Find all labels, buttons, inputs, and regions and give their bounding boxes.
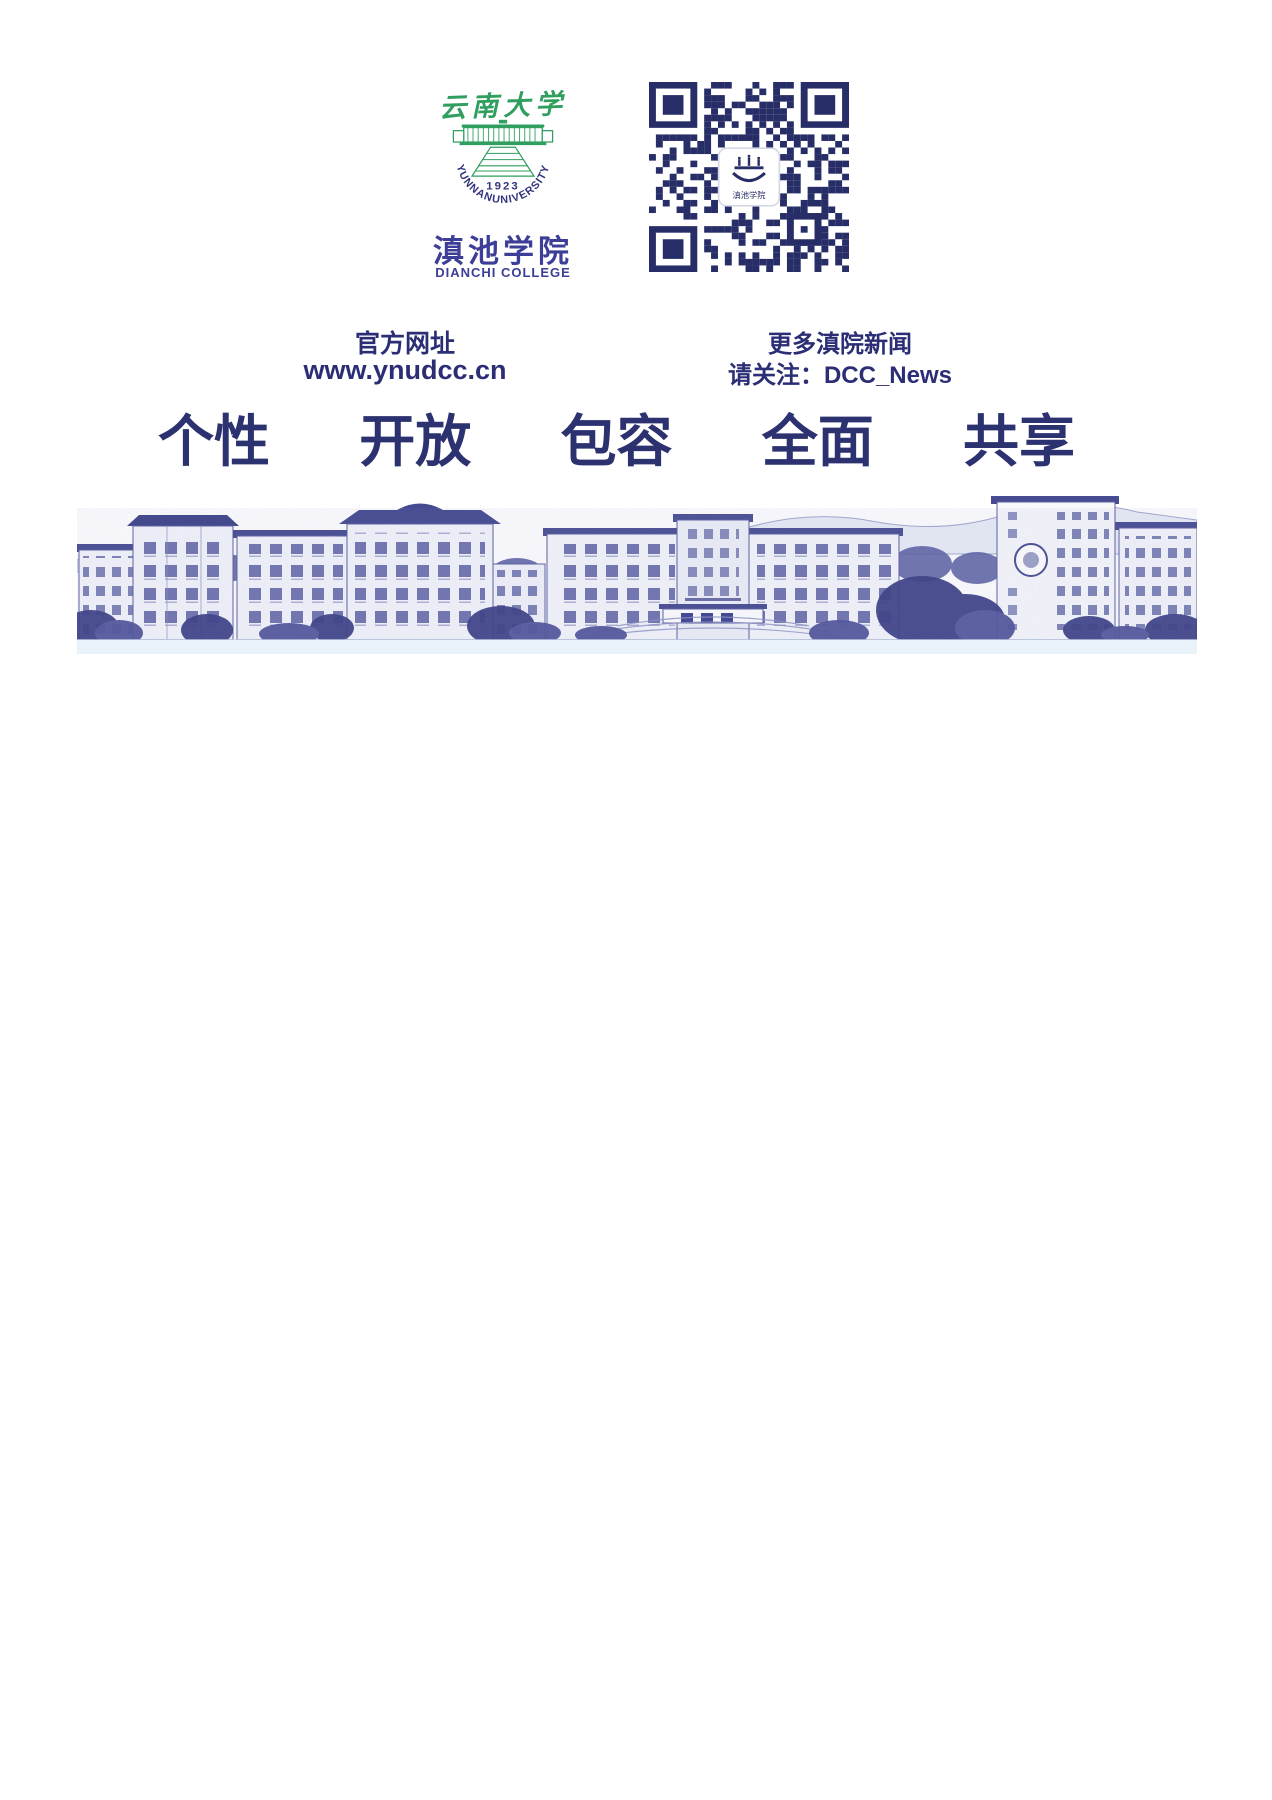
emblem-year-text: 1923 [486, 181, 520, 193]
sketch-grain-overlay [77, 508, 1197, 640]
slogan-word-individuality: 个性 [158, 397, 270, 478]
campus-illustration [77, 468, 1197, 654]
emblem-steps-icon [472, 147, 534, 176]
wechat-follow-text: 请关注：DCC_News [700, 355, 980, 390]
wechat-qr-code: 滇池学院 [649, 82, 849, 272]
emblem-hall-icon [453, 120, 552, 145]
college-name-en: DIANCHI COLLEGE [400, 265, 606, 280]
slogan-word-sharing: 共享 [963, 397, 1075, 478]
university-emblem-icon: 1923 YUNNANUNIVERSITY [441, 118, 565, 226]
website-url: www.ynudcc.cn [280, 355, 530, 386]
qr-center-text: 滇池学院 [732, 190, 765, 200]
slogan-word-inclusiveness: 包容 [561, 397, 673, 478]
slogan-word-comprehensiveness: 全面 [762, 397, 874, 478]
qr-center-logo: 滇池学院 [719, 148, 780, 206]
document-page: 云南大学 1923 YUNNANUNIVERSITY 滇池学院 DIANCHI … [0, 0, 1272, 1800]
wechat-news-label: 更多滇院新闻 [715, 324, 965, 359]
slogan-word-openness: 开放 [359, 397, 471, 478]
slogan-banner: 个性 开放 包容 全面 共享 [158, 397, 1075, 478]
bottom-strip [77, 640, 1197, 654]
